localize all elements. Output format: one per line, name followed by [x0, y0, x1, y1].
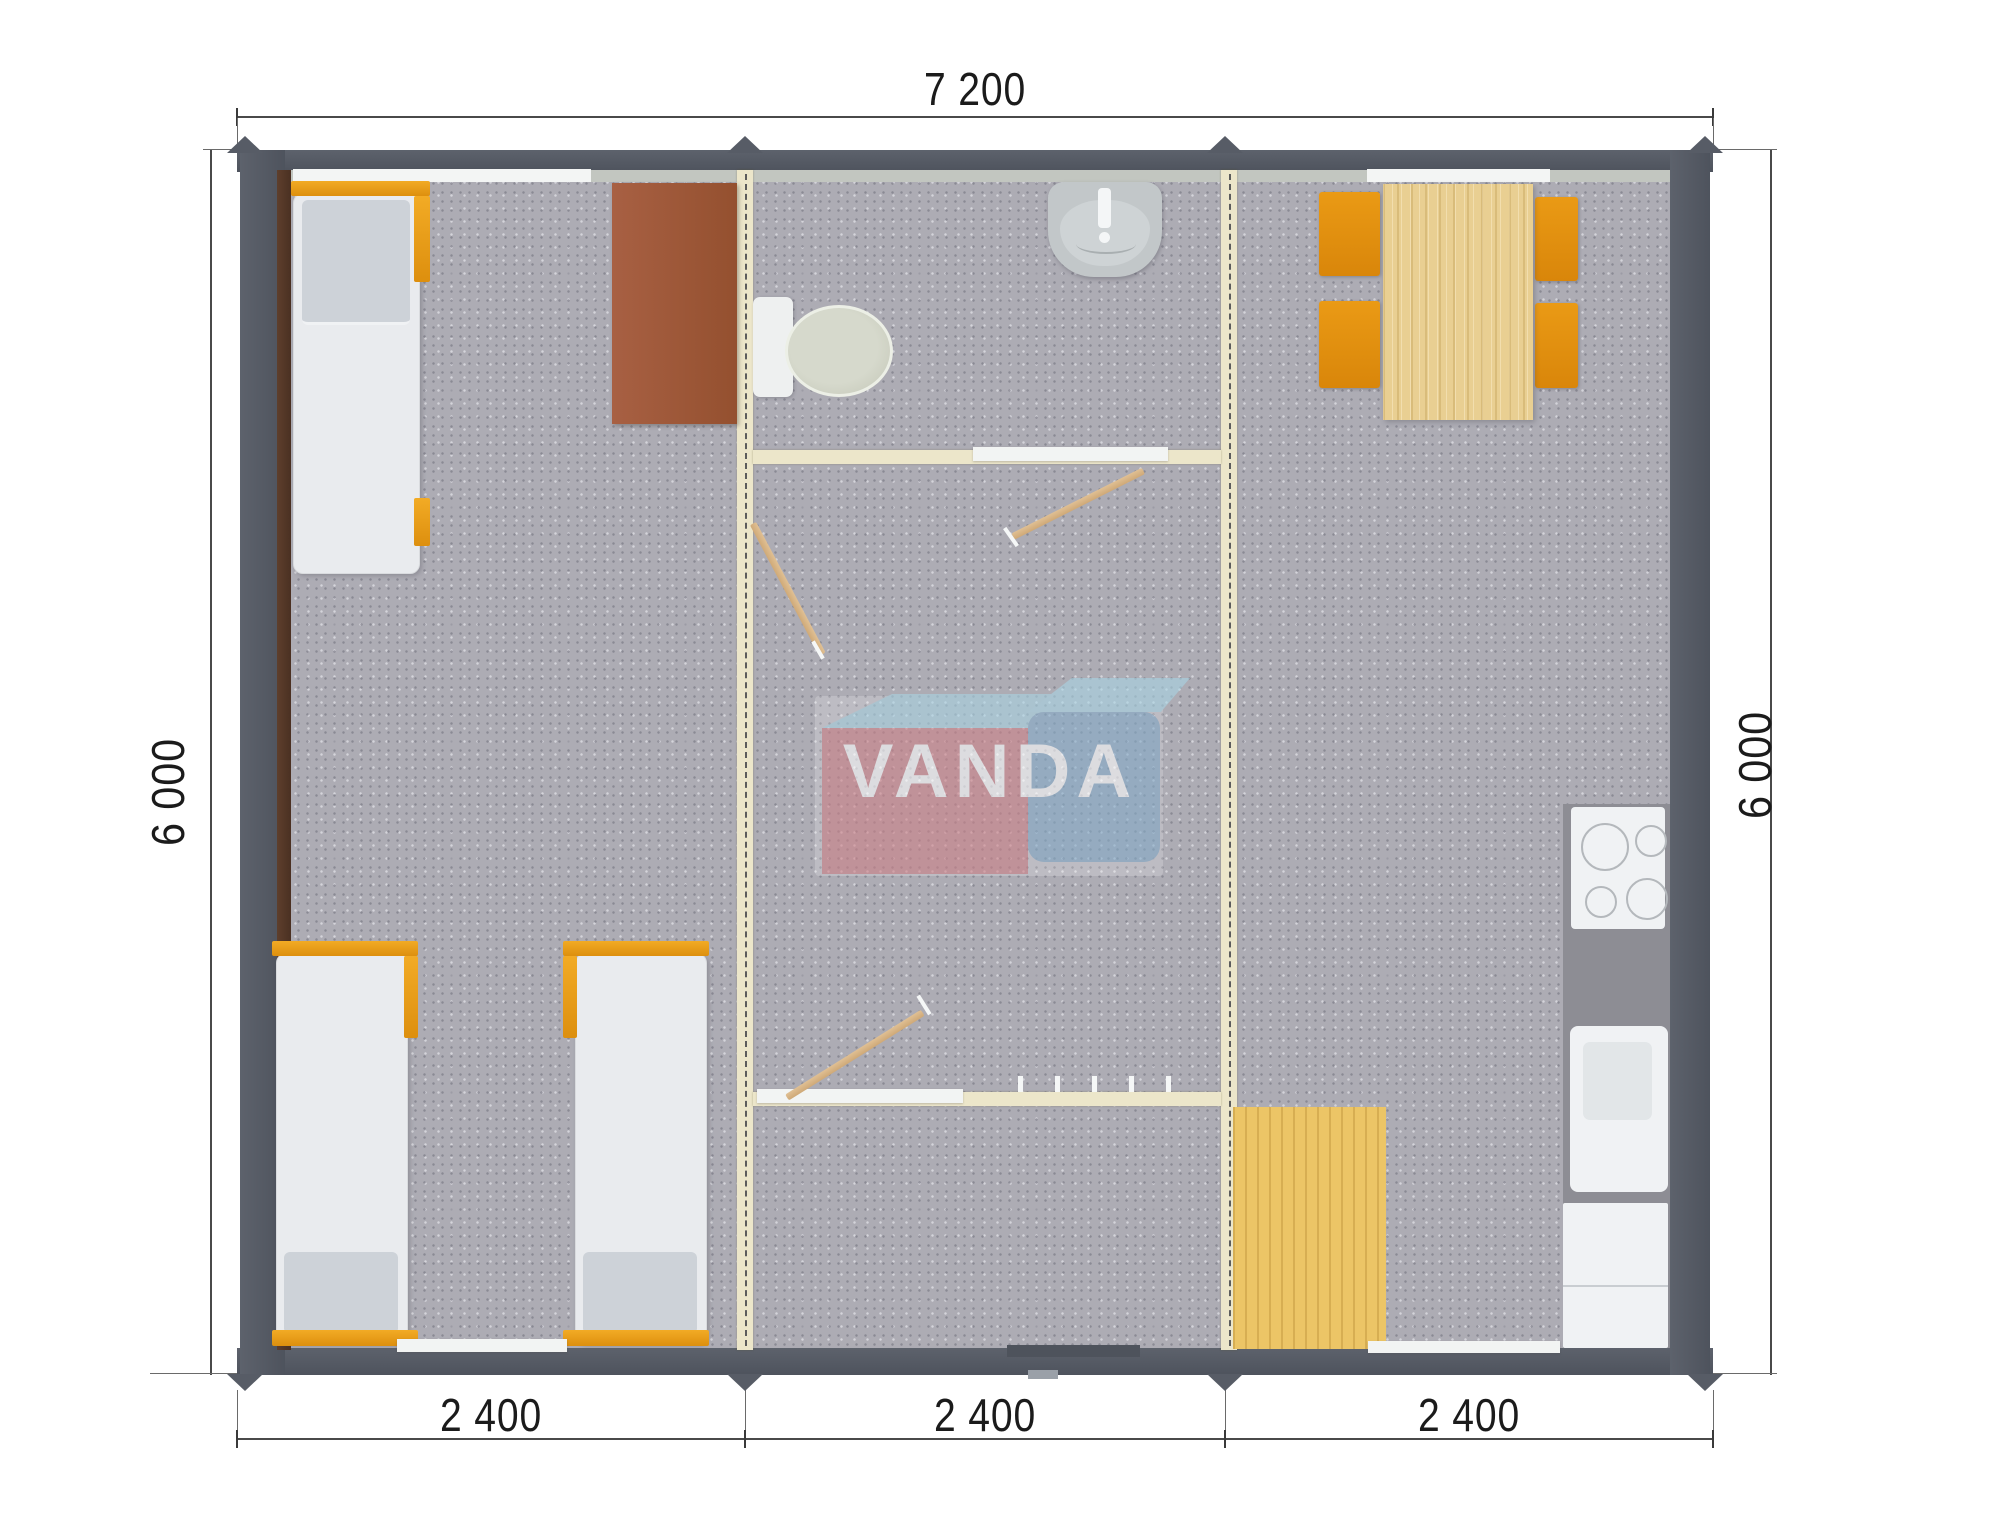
basin-drain-curve	[1076, 234, 1136, 254]
joint-marker-icon	[1207, 1374, 1243, 1391]
desk	[612, 183, 737, 424]
dim-tick	[1224, 1430, 1226, 1448]
joint-marker-icon	[1687, 136, 1723, 153]
window-right-module	[1367, 169, 1550, 182]
coat-hook-icon	[1092, 1076, 1097, 1092]
panel-joint-dash	[1229, 174, 1231, 1346]
chair	[1319, 192, 1380, 276]
wash-basin	[1048, 182, 1162, 277]
panel-joint-dash	[745, 174, 747, 1346]
coat-hook-icon	[1055, 1076, 1060, 1092]
dim-top-label: 7 200	[848, 62, 1103, 116]
chair	[1319, 301, 1380, 388]
burner-icon	[1581, 823, 1629, 871]
logo-text: VANDA	[815, 734, 1165, 810]
dim-right-label: 6 000	[1728, 675, 1772, 855]
bed-frame-rail	[563, 941, 709, 956]
bed-pillow	[583, 1252, 697, 1335]
wall-right	[1670, 150, 1710, 1375]
wall-bottom-dark-overlay	[1007, 1345, 1140, 1357]
bed-frame-rail	[291, 181, 430, 196]
toilet-bowl	[785, 305, 893, 397]
bed-frame-post	[404, 956, 418, 1038]
dining-table	[1383, 184, 1533, 420]
bed-frame-post	[414, 498, 430, 546]
logo-text-da: DA	[1016, 729, 1138, 814]
kitchen-sink	[1570, 1026, 1668, 1192]
dim-tick	[744, 1430, 746, 1448]
fridge	[1563, 1203, 1668, 1348]
dim-top-line	[237, 116, 1713, 118]
joint-marker-icon	[227, 1374, 263, 1391]
burner-icon	[1585, 886, 1617, 918]
chair	[1535, 303, 1578, 388]
bed-frame-rail	[272, 941, 418, 956]
burner-icon	[1635, 825, 1667, 857]
dim-left-label: 6 000	[141, 702, 185, 882]
entrance-threshold-right	[1368, 1341, 1560, 1353]
entrance-threshold-left	[397, 1339, 567, 1352]
sink-basin	[1583, 1042, 1652, 1120]
joint-marker-icon	[1687, 1374, 1723, 1391]
wood-floor-mat	[1233, 1107, 1386, 1349]
bed-frame-rail	[563, 1330, 709, 1346]
dim-bottom-label-3: 2 400	[1342, 1388, 1597, 1442]
bed-frame-post	[414, 196, 430, 282]
bathroom-door-track	[973, 447, 1168, 461]
coat-hook-icon	[1166, 1076, 1171, 1092]
chair	[1535, 197, 1578, 281]
dim-bottom-label-1: 2 400	[364, 1388, 619, 1442]
logo-text-van: VAN	[843, 729, 1016, 814]
joint-marker-icon	[727, 136, 763, 153]
floor-plan-canvas: 7 200 2 400 2 400 2 400 6 000 6 000	[0, 0, 2000, 1537]
vanda-logo: VANDA	[815, 676, 1165, 881]
fridge-door-seam	[1563, 1285, 1668, 1287]
divider-wall-left	[737, 170, 753, 1350]
dim-tick	[236, 1430, 238, 1448]
dim-bottom-label-2: 2 400	[858, 1388, 1113, 1442]
joint-marker-icon	[227, 136, 263, 153]
bed-2	[272, 940, 432, 1348]
bed-pillow	[284, 1252, 398, 1335]
toilet	[753, 295, 893, 399]
burner-icon	[1626, 878, 1668, 920]
faucet-icon	[1098, 188, 1111, 228]
bed-pillow	[302, 200, 410, 325]
joint-marker-icon	[1207, 136, 1243, 153]
bed-3	[563, 940, 723, 1348]
dim-tick	[1712, 1430, 1714, 1448]
cooktop	[1571, 807, 1665, 929]
bed-frame-post	[563, 956, 577, 1038]
entry-step	[1028, 1370, 1058, 1379]
coat-hook-icon	[1018, 1076, 1023, 1092]
dim-left-line	[210, 150, 212, 1375]
bed-1	[272, 180, 432, 580]
coat-hook-icon	[1129, 1076, 1134, 1092]
joint-marker-icon	[727, 1374, 763, 1391]
